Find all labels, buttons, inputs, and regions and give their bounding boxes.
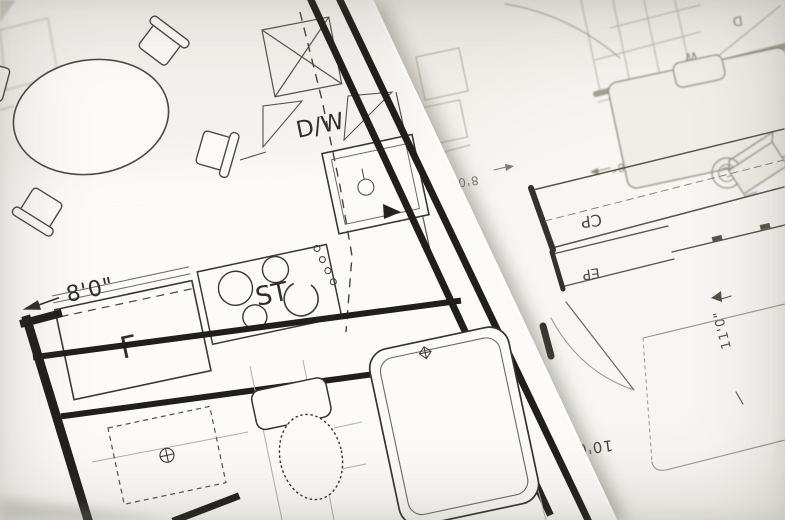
- closet-ep-label: EP: [581, 264, 600, 282]
- blueprint-photo-scene: W D 7'8" 4'8": [0, 0, 785, 520]
- blueprint-photo: W D 7'8" 4'8": [0, 0, 785, 520]
- closet-cp-label: CP: [579, 210, 603, 232]
- dryer-label: D: [732, 12, 744, 28]
